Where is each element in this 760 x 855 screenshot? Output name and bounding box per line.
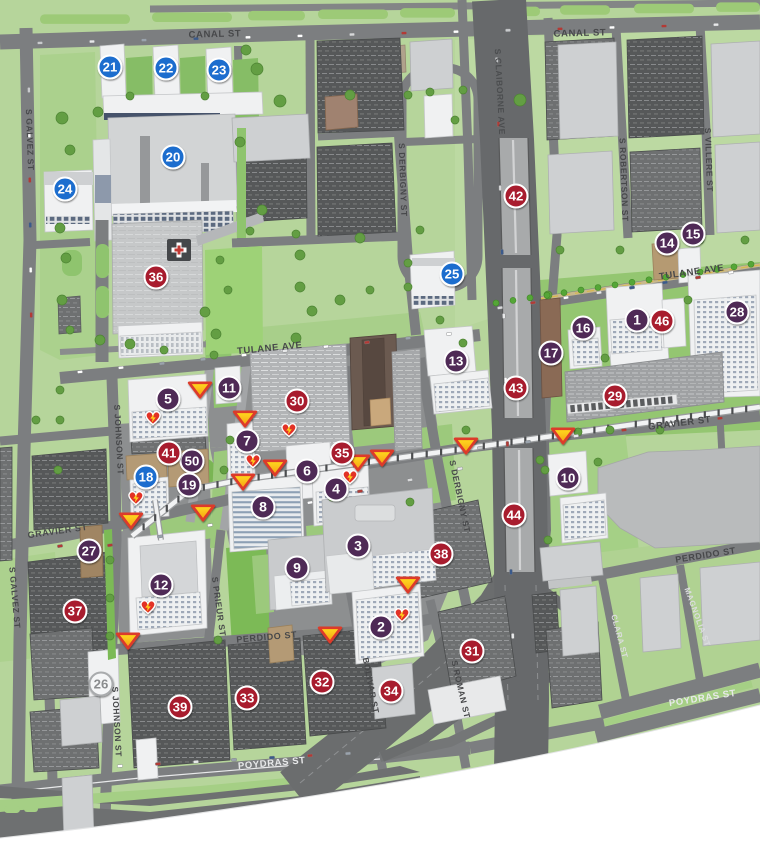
svg-text:17: 17 [544,346,559,361]
svg-text:4: 4 [332,481,340,497]
svg-text:12: 12 [154,578,169,593]
svg-text:18: 18 [139,470,154,485]
svg-text:2: 2 [377,619,385,635]
svg-text:42: 42 [509,189,524,204]
svg-text:32: 32 [315,675,330,690]
svg-text:7: 7 [243,433,251,449]
svg-text:29: 29 [608,389,623,404]
svg-text:CANAL ST: CANAL ST [188,28,241,40]
svg-text:38: 38 [434,547,449,562]
svg-text:1: 1 [633,312,641,328]
svg-text:25: 25 [445,267,460,282]
svg-text:21: 21 [103,60,118,75]
svg-text:13: 13 [449,354,464,369]
svg-text:44: 44 [507,508,522,523]
svg-text:3: 3 [354,538,362,554]
svg-text:27: 27 [82,544,97,559]
svg-text:5: 5 [164,391,172,407]
svg-text:37: 37 [68,604,83,619]
svg-text:34: 34 [384,684,399,699]
svg-text:35: 35 [335,446,350,461]
svg-text:10: 10 [561,471,576,486]
svg-text:15: 15 [686,227,701,242]
svg-text:22: 22 [159,61,174,76]
svg-text:50: 50 [185,454,200,469]
svg-text:CANAL ST: CANAL ST [553,27,606,39]
svg-text:39: 39 [173,700,188,715]
svg-text:16: 16 [576,321,591,336]
svg-text:30: 30 [290,394,305,409]
svg-text:23: 23 [212,63,227,78]
svg-text:46: 46 [655,314,670,329]
svg-text:36: 36 [149,270,164,285]
svg-text:14: 14 [660,236,675,251]
svg-text:26: 26 [94,677,109,692]
svg-text:19: 19 [182,478,197,493]
svg-text:9: 9 [293,560,301,576]
svg-text:31: 31 [465,644,480,659]
svg-text:24: 24 [58,182,73,197]
svg-text:20: 20 [166,150,181,165]
svg-text:11: 11 [222,381,236,396]
svg-text:8: 8 [259,499,267,515]
svg-text:41: 41 [162,446,177,461]
svg-text:6: 6 [303,463,311,479]
svg-text:28: 28 [730,305,745,320]
svg-text:33: 33 [240,691,255,706]
svg-text:43: 43 [509,381,524,396]
